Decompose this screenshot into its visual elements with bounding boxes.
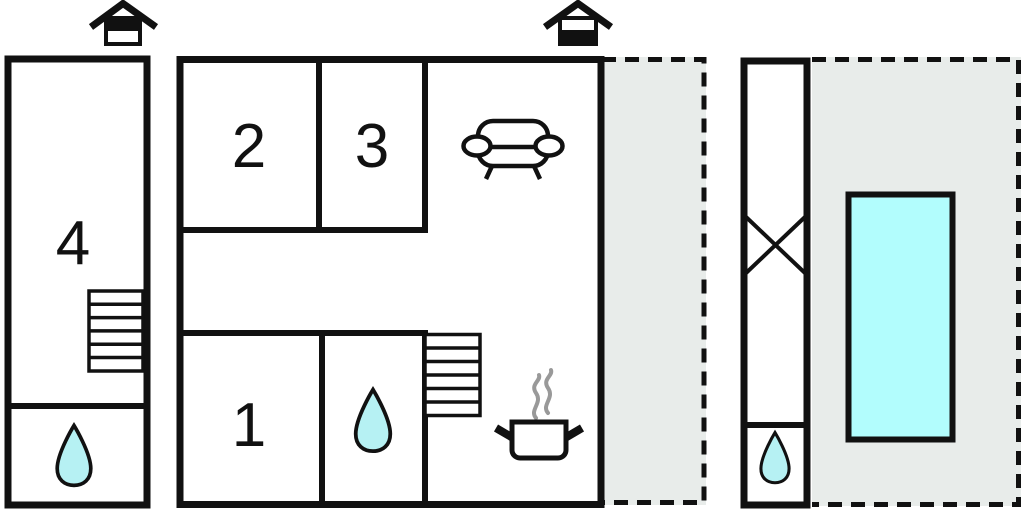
annex-building: 4 [5, 59, 147, 505]
stairs-icon [89, 291, 143, 371]
pool-terrace [812, 57, 1021, 506]
floor-plan: 4 2 3 1 [0, 0, 1024, 512]
room-3-label: 3 [355, 112, 389, 181]
upper-floor-house-icon [91, 4, 156, 45]
swimming-pool [849, 195, 953, 440]
room-2-label: 2 [232, 112, 266, 181]
room-1-label: 1 [232, 391, 266, 460]
room-4-label: 4 [56, 209, 90, 278]
ground-floor-house-icon [545, 4, 611, 47]
terrace-area [602, 57, 706, 505]
main-building: 2 3 1 [177, 56, 601, 505]
floor-plan-canvas: 4 2 3 1 [0, 0, 1024, 512]
right-wing-building [741, 61, 810, 505]
stairs-icon [425, 335, 480, 416]
ground-floor-terrace [602, 57, 706, 505]
